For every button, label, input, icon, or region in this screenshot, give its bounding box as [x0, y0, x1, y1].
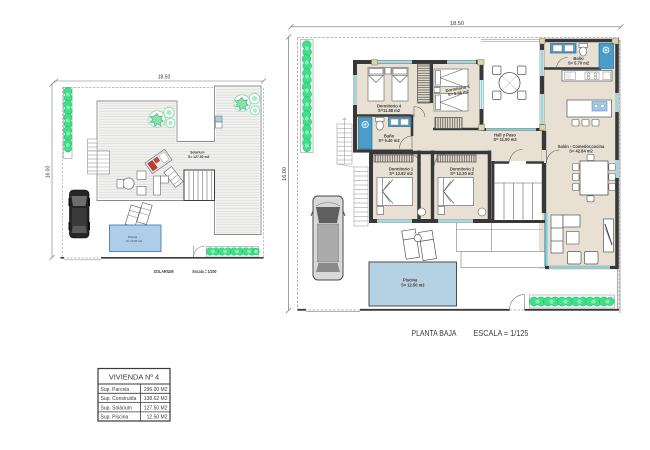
- svg-text:PLANTA BAJA: PLANTA BAJA: [412, 328, 457, 338]
- svg-text:296.00 M2: 296.00 M2: [144, 387, 168, 393]
- svg-text:ESCALA = 1/125: ESCALA = 1/125: [474, 328, 529, 338]
- svg-text:Sup. Parcela: Sup. Parcela: [101, 387, 130, 393]
- svg-text:Sup. Construida: Sup. Construida: [101, 396, 137, 402]
- svg-text:S= 5.70 m2: S= 5.70 m2: [568, 61, 590, 66]
- svg-text:S= 42.84 m2: S= 42.84 m2: [569, 149, 593, 154]
- svg-text:SOLARIUM: SOLARIUM: [154, 269, 174, 274]
- svg-text:S= 5.40 m2: S= 5.40 m2: [378, 138, 400, 143]
- svg-text:138.62 M2: 138.62 M2: [144, 396, 168, 402]
- svg-text:S=11.88 m2: S=11.88 m2: [378, 108, 401, 113]
- svg-text:18.50: 18.50: [158, 75, 171, 81]
- svg-text:Escala = 1/200: Escala = 1/200: [193, 269, 218, 274]
- svg-text:S= 12.20 m2: S= 12.20 m2: [450, 171, 474, 176]
- svg-text:127.50 M2: 127.50 M2: [144, 405, 168, 411]
- svg-text:18.50: 18.50: [450, 21, 464, 27]
- svg-text:S= 12.82 m2: S= 12.82 m2: [389, 171, 413, 176]
- svg-text:16.00: 16.00: [46, 166, 52, 179]
- svg-text:Sup. Piscina: Sup. Piscina: [101, 415, 129, 421]
- svg-text:S= 12.50 m2: S= 12.50 m2: [126, 239, 142, 243]
- svg-text:Sup. Solárium: Sup. Solárium: [101, 405, 132, 411]
- svg-text:S= 11.00 m2: S= 11.00 m2: [493, 137, 517, 142]
- svg-text:Solarium: Solarium: [190, 151, 205, 155]
- svg-text:16.00: 16.00: [282, 167, 288, 181]
- svg-text:12.50 M2: 12.50 M2: [147, 415, 168, 421]
- svg-text:VIVIENDA Nº 4: VIVIENDA Nº 4: [109, 373, 159, 382]
- svg-text:S= 12.50 m2: S= 12.50 m2: [401, 283, 425, 288]
- svg-text:S= 127.50 m2: S= 127.50 m2: [188, 155, 210, 159]
